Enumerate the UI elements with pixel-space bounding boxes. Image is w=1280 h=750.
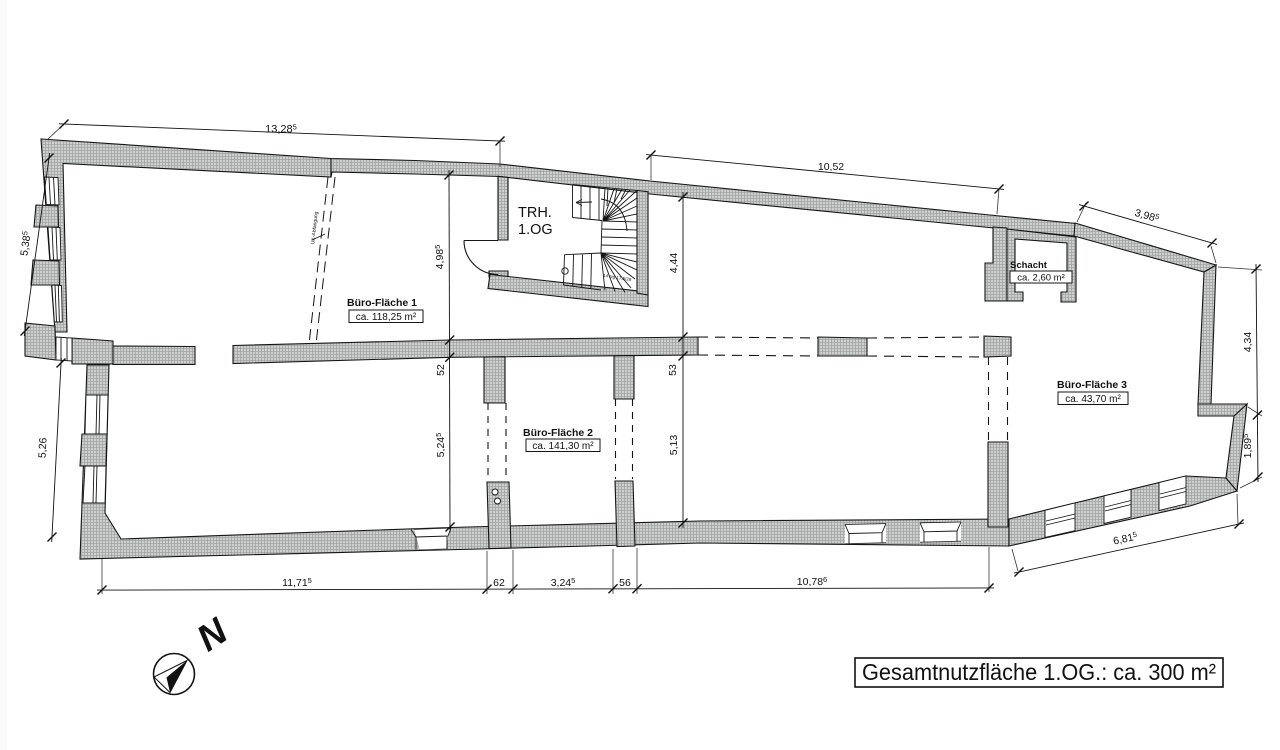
svg-text:5,26: 5,26	[36, 437, 49, 458]
svg-text:Gesamtnutzfläche 1.OG.: ca. 30: Gesamtnutzfläche 1.OG.: ca. 300 m²	[862, 659, 1216, 685]
svg-text:11,715: 11,715	[282, 576, 312, 589]
svg-text:5,13: 5,13	[668, 435, 680, 456]
svg-text:4,44: 4,44	[668, 253, 680, 274]
svg-text:ca. 118,25 m²: ca. 118,25 m²	[356, 312, 417, 323]
svg-text:Büro-Fläche 1: Büro-Fläche 1	[347, 297, 417, 309]
svg-text:10,52: 10,52	[818, 161, 844, 173]
svg-text:ca. 43,70 m²: ca. 43,70 m²	[1065, 394, 1121, 405]
svg-text:56: 56	[619, 577, 631, 589]
svg-text:ca. 2,60 m²: ca. 2,60 m²	[1017, 273, 1065, 284]
svg-text:Büro-Fläche 3: Büro-Fläche 3	[1057, 379, 1127, 391]
svg-text:10,786: 10,786	[797, 575, 827, 588]
svg-text:ca. 141,30 m²: ca. 141,30 m²	[532, 441, 594, 452]
svg-text:62: 62	[493, 577, 505, 589]
svg-text:Büro-Fläche 2: Büro-Fläche 2	[523, 427, 593, 439]
svg-text:TRH.: TRH.	[518, 205, 552, 221]
svg-text:52: 52	[435, 364, 447, 376]
svg-text:Schacht: Schacht	[1010, 260, 1048, 271]
svg-text:1.OG: 1.OG	[518, 222, 553, 238]
svg-text:4,34: 4,34	[1242, 332, 1254, 353]
svg-text:53: 53	[667, 364, 679, 376]
svg-text:13,285: 13,285	[265, 123, 297, 136]
